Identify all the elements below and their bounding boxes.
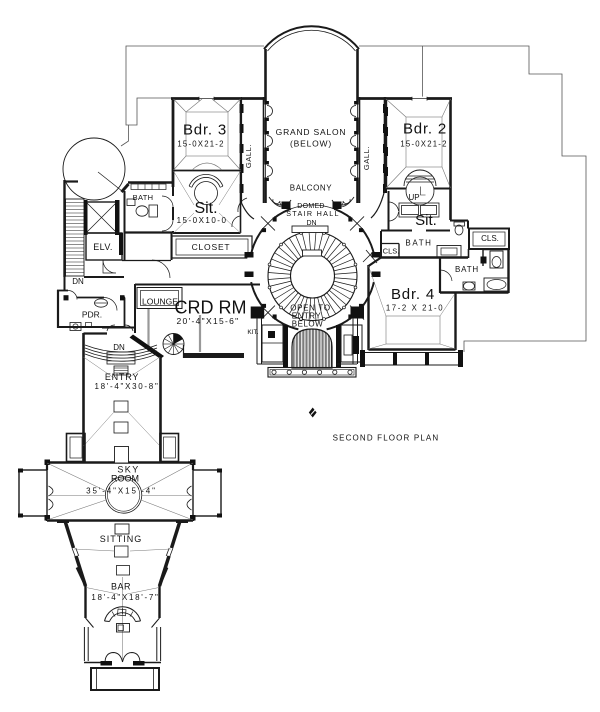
svg-text:15-0X21-2: 15-0X21-2 (177, 140, 224, 149)
svg-text:CLOSET: CLOSET (192, 242, 231, 252)
svg-text:DN: DN (72, 277, 84, 286)
svg-text:SECOND FLOOR PLAN: SECOND FLOOR PLAN (333, 434, 440, 443)
svg-text:LOUNGE: LOUNGE (142, 297, 178, 307)
svg-text:UP: UP (408, 193, 419, 202)
svg-text:PDR.: PDR. (82, 310, 102, 320)
svg-text:17-2 X 21-0: 17-2 X 21-0 (386, 304, 444, 313)
svg-text:(BELOW): (BELOW) (290, 139, 332, 149)
svg-text:SITTING: SITTING (100, 534, 143, 544)
svg-text:DN: DN (113, 343, 125, 352)
svg-text:BAR: BAR (111, 582, 131, 592)
svg-text:35'-4"X15'-4": 35'-4"X15'-4" (86, 487, 157, 496)
svg-text:20'-4"X15-6": 20'-4"X15-6" (177, 316, 240, 326)
svg-text:15-0X10-0: 15-0X10-0 (177, 216, 228, 225)
svg-text:ELV.: ELV. (93, 242, 113, 252)
svg-text:BELOW: BELOW (292, 320, 323, 329)
svg-text:18'-4"X18'-7": 18'-4"X18'-7" (91, 593, 159, 602)
svg-text:15-0X21-2: 15-0X21-2 (400, 140, 447, 149)
svg-text:Bdr. 3: Bdr. 3 (183, 122, 227, 139)
svg-text:CLS.: CLS. (383, 247, 400, 256)
svg-text:BATH: BATH (133, 193, 154, 202)
svg-text:ROOM: ROOM (111, 474, 139, 484)
svg-text:GRAND SALON: GRAND SALON (276, 127, 347, 137)
svg-text:Bdr. 4: Bdr. 4 (391, 286, 435, 303)
svg-text:Sit.: Sit. (415, 212, 437, 229)
svg-text:GALL.: GALL. (362, 146, 371, 170)
svg-text:BATH: BATH (455, 265, 479, 274)
svg-text:CLS.: CLS. (481, 234, 499, 243)
svg-text:CRD RM: CRD RM (175, 298, 247, 318)
svg-text:STAIR HALL: STAIR HALL (286, 209, 340, 218)
svg-text:BATH: BATH (405, 239, 432, 248)
svg-text:KIT.: KIT. (247, 329, 258, 336)
svg-text:Bdr. 2: Bdr. 2 (403, 121, 447, 138)
svg-text:ENTRY: ENTRY (105, 372, 139, 382)
svg-text:BALCONY: BALCONY (290, 184, 332, 193)
svg-text:18'-4"X30-8": 18'-4"X30-8" (95, 382, 160, 391)
svg-text:DN: DN (306, 220, 316, 227)
svg-text:GALL.: GALL. (244, 144, 253, 168)
svg-text:Sit.: Sit. (194, 200, 217, 217)
